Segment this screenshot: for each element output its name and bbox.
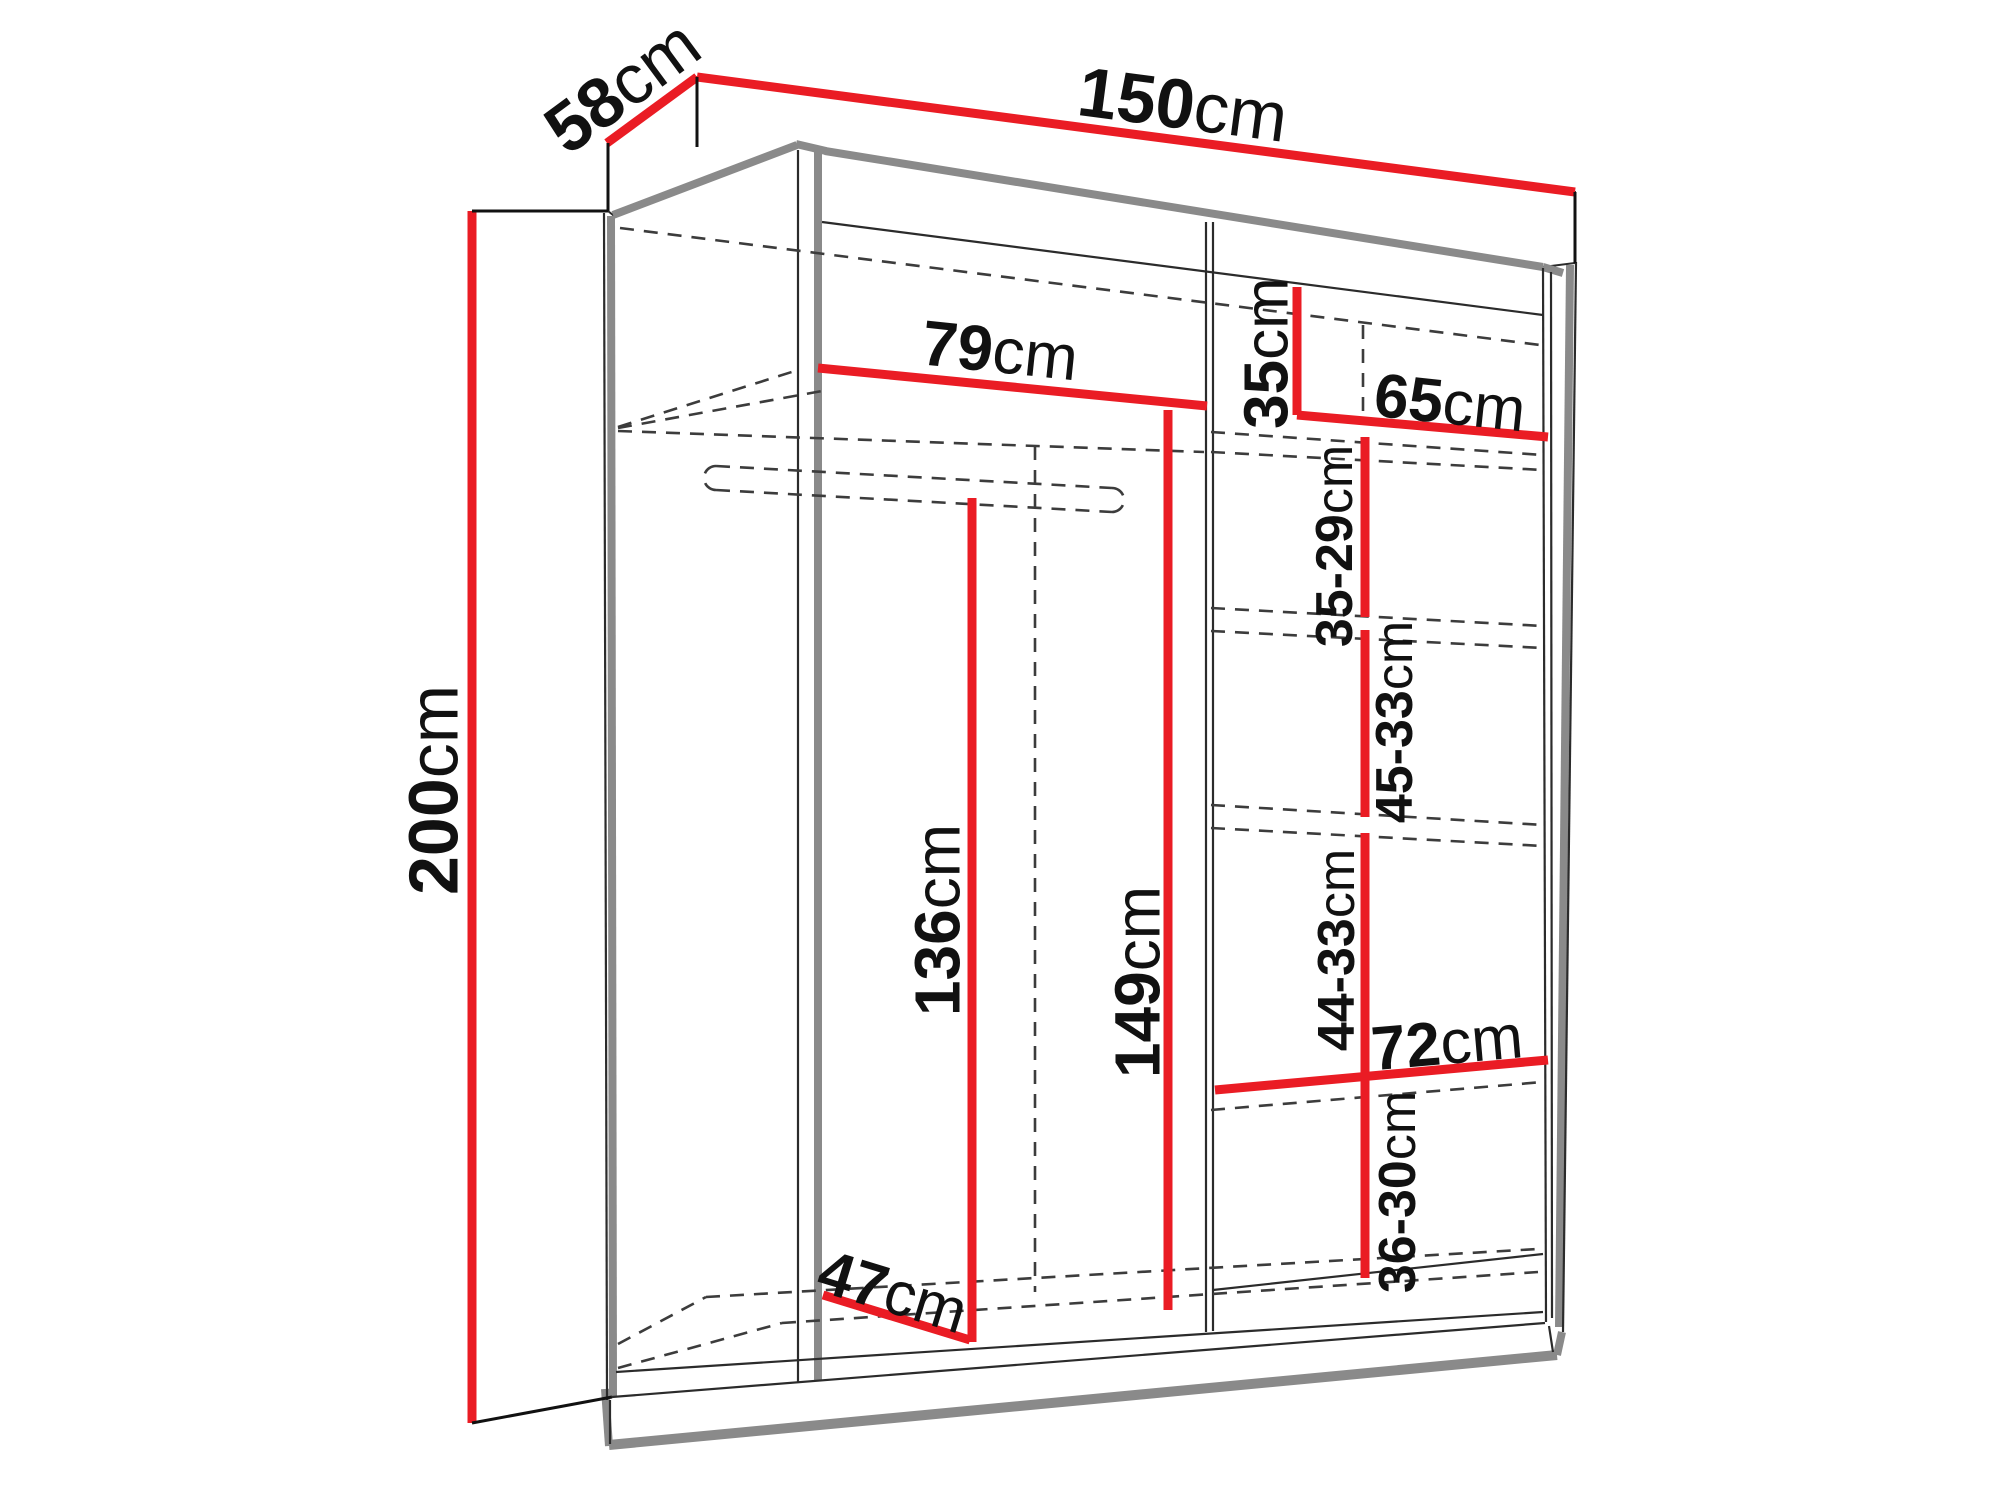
plinth-bottom-shadow xyxy=(609,1355,1557,1445)
gap3-dimension-label: 44-33cm xyxy=(1308,849,1366,1051)
left-height-dimension-label: 149cm xyxy=(1101,886,1173,1078)
dimension-value: 35-29 xyxy=(1306,514,1364,647)
dimension-value: 79 xyxy=(918,306,996,385)
wardrobe-dimension-diagram: 58cm 150cm 200cm 79cm 35cm 65cm 35-29cm … xyxy=(0,0,2000,1500)
top-compartment-dimension-label: 35cm xyxy=(1233,277,1302,429)
dimension-unit: cm xyxy=(1366,621,1424,690)
left-shelf-depth-edge-a xyxy=(618,370,798,427)
gap1-dimension-label: 35-29cm xyxy=(1306,445,1364,647)
dimension-value: 149 xyxy=(1101,971,1173,1078)
right-inner-line-a xyxy=(1543,268,1546,1322)
height-bottom-tick xyxy=(472,1397,612,1423)
dimension-unit: cm xyxy=(1189,67,1292,157)
plinth-right-edge xyxy=(1549,1326,1553,1352)
dimension-unit: cm xyxy=(1437,1002,1525,1078)
dimension-unit: cm xyxy=(989,314,1081,395)
dimension-value: 72 xyxy=(1369,1009,1444,1084)
bottom-front-edge xyxy=(612,1323,1545,1397)
dimension-unit: cm xyxy=(1439,368,1528,445)
dimension-unit: cm xyxy=(901,824,973,909)
floor-hidden-depth-edge-a xyxy=(618,1297,706,1344)
dimension-value: 65 xyxy=(1371,361,1447,437)
dimension-value: 36-30 xyxy=(1369,1160,1427,1293)
dimension-value: 200 xyxy=(395,778,473,895)
right-foot-shadow xyxy=(1557,1332,1562,1355)
shelf3-hidden-edge-b xyxy=(1211,828,1543,846)
dimension-value: 150 xyxy=(1074,52,1200,145)
left-silhouette-line xyxy=(604,213,607,1400)
dimension-unit: cm xyxy=(1369,1091,1427,1160)
gap4-dimension-label: 36-30cm xyxy=(1369,1091,1427,1293)
shelf1-hidden-edge-b xyxy=(1211,452,1543,470)
hanging-dimension-label: 136cm xyxy=(901,824,973,1016)
dimension-unit: cm xyxy=(1306,445,1364,514)
shelf-width-dimension-label: 72cm xyxy=(1369,1002,1526,1084)
gap2-dimension-label: 45-33cm xyxy=(1366,621,1424,823)
dimension-unit: cm xyxy=(395,685,473,778)
right-width-dimension-label: 65cm xyxy=(1371,361,1529,445)
height-dimension-label: 200cm xyxy=(395,685,473,895)
dimension-unit: cm xyxy=(1308,849,1366,918)
hanging-rail-left-cap xyxy=(704,466,716,490)
dimension-value: 35 xyxy=(1233,360,1302,429)
dimension-unit: cm xyxy=(1101,886,1173,971)
hanging-rail-bottom-edge xyxy=(716,490,1112,512)
hanging-rail-right-cap xyxy=(1112,488,1124,512)
dimension-value: 44-33 xyxy=(1308,918,1366,1051)
hanging-rail-top-edge xyxy=(716,466,1112,488)
dimension-value: 136 xyxy=(901,909,973,1016)
left-shelf-back-edge xyxy=(618,431,1204,452)
left-shelf-depth-edge-b xyxy=(618,391,822,428)
floor-front-edge xyxy=(616,1312,1543,1372)
dimension-unit: cm xyxy=(1233,277,1302,360)
bottom-depth-dimension-label: 47cm xyxy=(810,1237,975,1347)
diagram-canvas: 58cm 150cm 200cm 79cm 35cm 65cm 35-29cm … xyxy=(0,0,2000,1500)
crown-right-corner-edge xyxy=(1543,267,1563,273)
left-outer-edge xyxy=(611,216,613,1396)
dimension-value: 45-33 xyxy=(1366,690,1424,823)
right-inner-line-b xyxy=(1551,272,1552,1318)
